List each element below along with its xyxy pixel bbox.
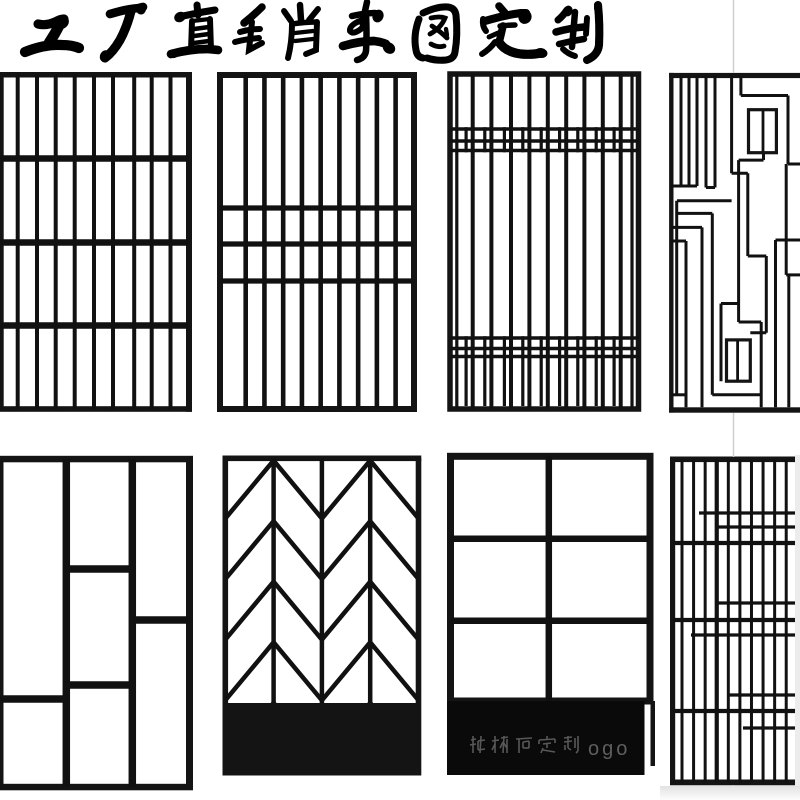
svg-text:ogo: ogo (588, 738, 630, 760)
